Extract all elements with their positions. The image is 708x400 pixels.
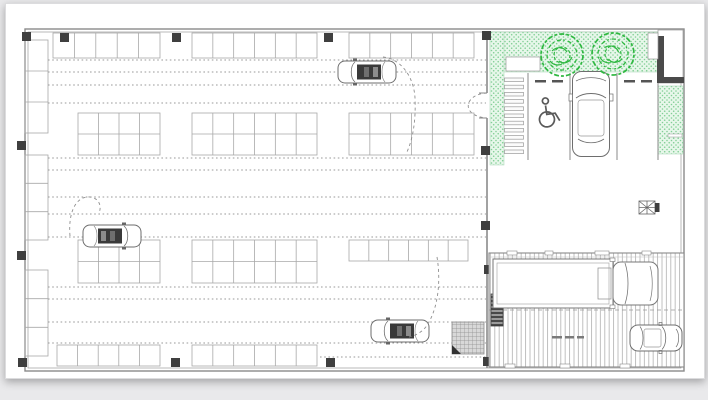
column [326,358,335,367]
green-strip-right [658,86,683,154]
stall-row [57,345,160,366]
moving-cars [70,57,439,345]
interior-wall [468,31,487,368]
stall-row [192,240,317,283]
wheel-stop [641,80,652,83]
column [60,33,69,42]
column [482,31,491,40]
wheelchair-icon [537,96,561,128]
ramp-annotation-marks [552,336,584,339]
crosswalk-bar [505,100,524,104]
side-stall-column [25,40,48,133]
floor-grate [452,322,484,354]
aisle-markings [48,60,486,357]
crosswalk-bar [505,92,524,96]
crosswalk-bar [505,143,524,147]
stall-row [349,33,474,58]
car-3 [371,318,429,345]
column [172,33,181,42]
box-truck [493,258,658,309]
wheel-stop [552,80,563,83]
stair-room [648,30,684,83]
crosswalk-bar [505,136,524,140]
green-strip-left [490,32,504,165]
stall-row [53,33,160,58]
column [18,358,27,367]
crosswalk-bar [505,114,524,118]
planter-box [506,57,540,71]
column [171,358,180,367]
parking-floor-plan [0,0,708,400]
stall-row [349,113,474,155]
vent-fan-icon [639,201,660,214]
stall-row [349,240,468,261]
crosswalk-bar [505,150,524,154]
structural-columns [17,31,493,367]
crosswalk-bar [505,128,524,132]
column [22,32,31,41]
column [481,221,490,230]
column [481,146,490,155]
stall-row [192,33,317,58]
crosswalk-bar [505,121,524,125]
ramp-car [630,323,682,354]
crosswalk-bar [505,107,524,111]
side-stall-column [25,270,48,356]
stall-row [192,345,317,366]
ramp-area [489,251,684,368]
column [17,141,26,150]
stall-row [192,113,317,155]
parking-stalls [25,33,474,366]
column [324,33,333,42]
side-stall-column [25,155,48,240]
stall-row [78,113,160,155]
crosswalk-bar [505,78,524,82]
entrance-door-arc [468,93,487,118]
column [17,251,26,260]
crosswalk-bar [505,85,524,89]
wheel-stop [535,80,546,83]
car-1 [338,59,396,86]
wheel-stop [624,80,635,83]
parked-car [569,72,613,157]
car-2 [83,223,141,250]
crosswalk [505,78,524,154]
